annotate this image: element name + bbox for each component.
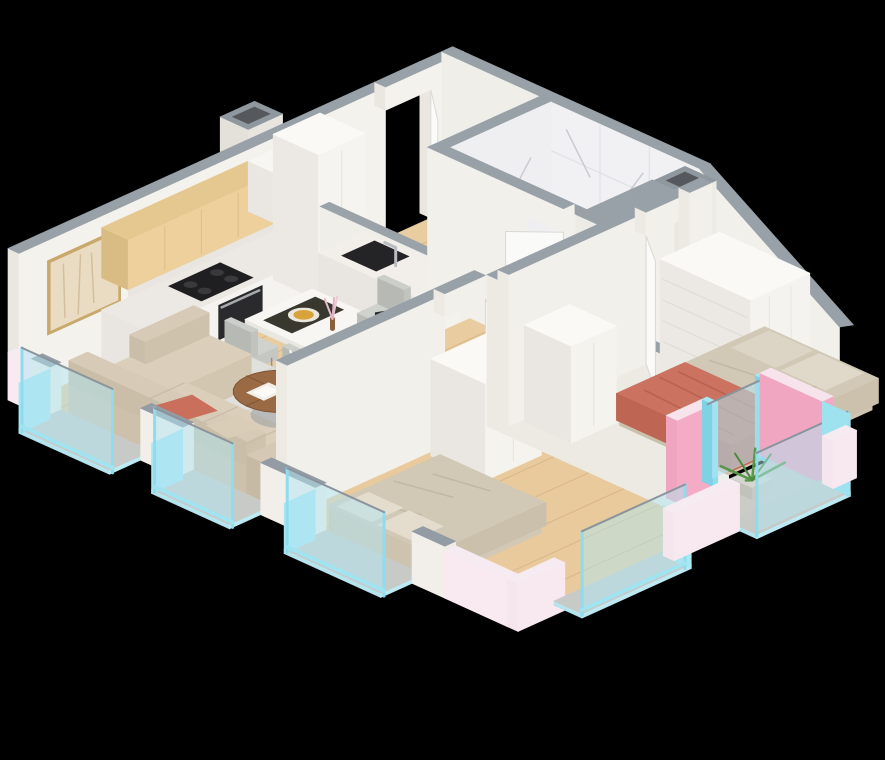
isometric-floor-plan-render [0, 0, 885, 760]
kitchen-tall-cabinet-west [273, 134, 318, 300]
wall-south-segment-west [663, 508, 674, 561]
plate-food [294, 310, 314, 319]
wall-south-segment-west [507, 579, 518, 632]
cooktop-burner [184, 282, 197, 288]
cooktop-burner [211, 270, 224, 276]
wall-south-segment-west [822, 436, 833, 489]
wall-bedroom2-north-west-west [498, 270, 509, 427]
bedroom2-door-leaf [646, 236, 655, 390]
dining-chair-back-south [251, 330, 257, 359]
floor-plan-stage [0, 0, 885, 760]
balcony-slider-post-west [702, 399, 713, 486]
cooktop-burner [225, 276, 238, 282]
cooktop-burner [198, 288, 211, 294]
